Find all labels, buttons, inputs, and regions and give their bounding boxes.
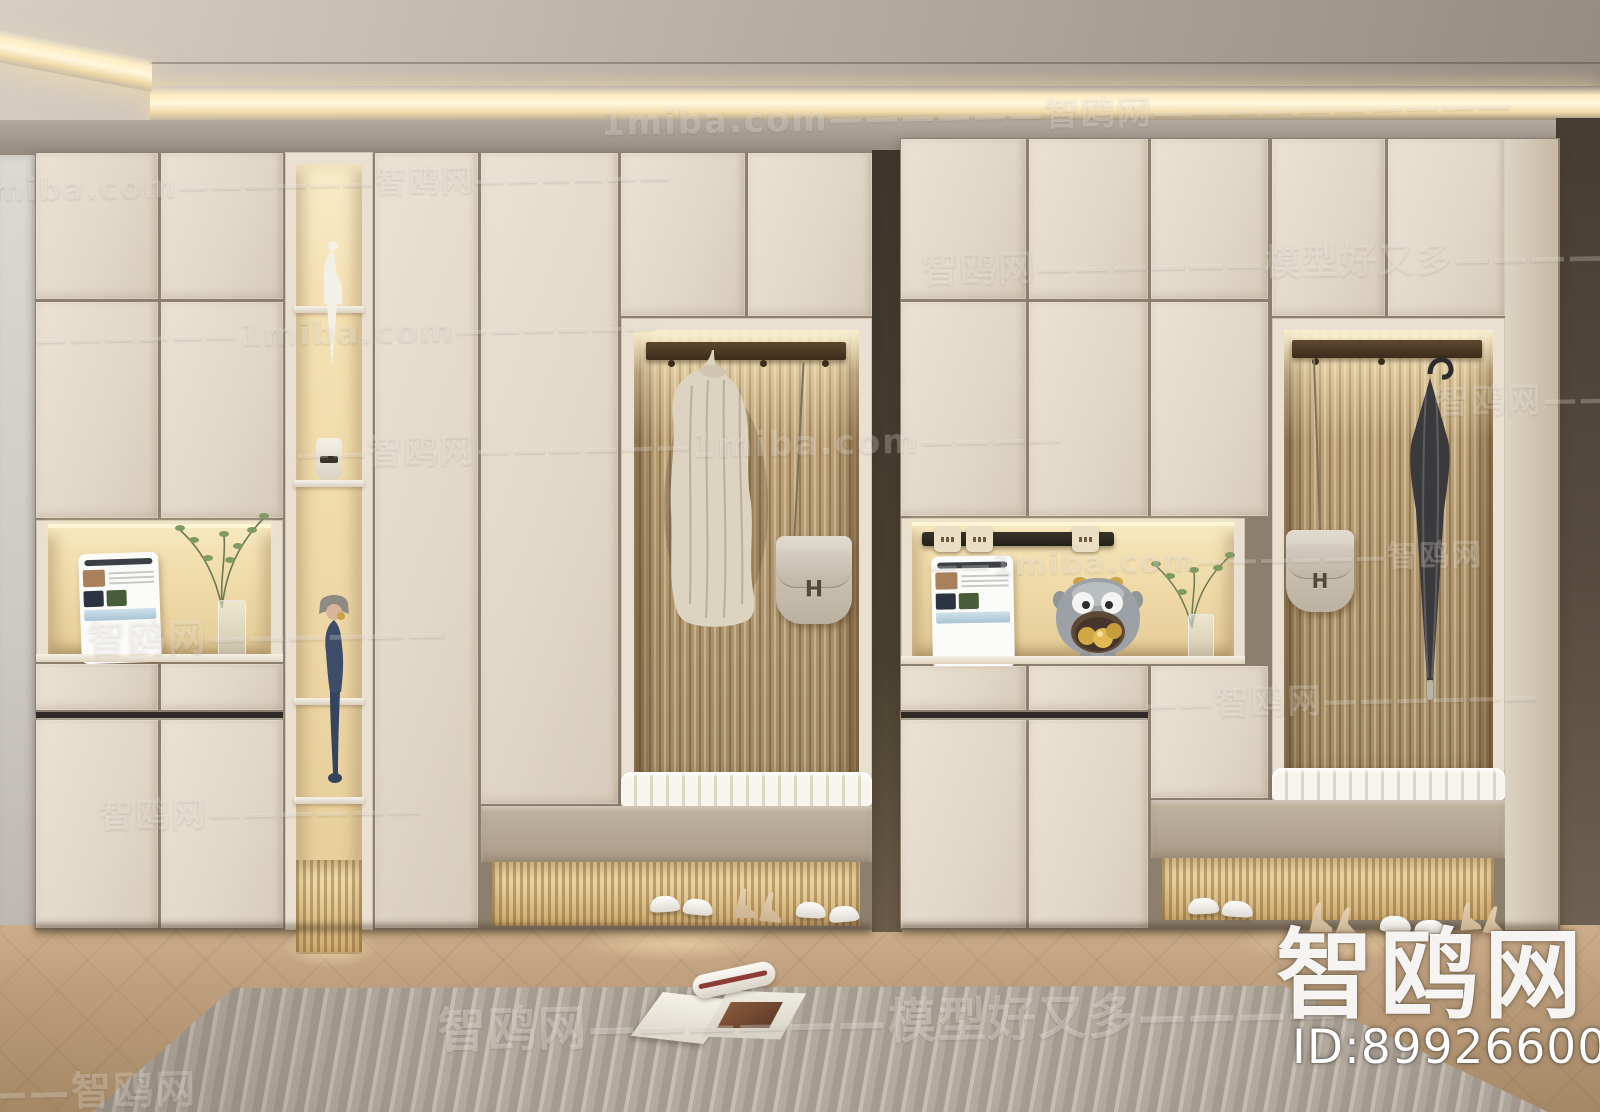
brand-logo: 智鸥网: [1276, 896, 1588, 1038]
bench-cushion: [1272, 768, 1505, 800]
niche-counter: [36, 654, 283, 662]
tall-cabinet-door: [481, 153, 618, 804]
shelf-base-light: [296, 860, 362, 952]
cabinet-door: [1151, 139, 1268, 299]
glass-vase: [1188, 614, 1214, 660]
render-id: ID:899266006: [1292, 1020, 1600, 1075]
vase-small: [316, 438, 342, 480]
handbag-monogram: H: [805, 578, 823, 603]
shoe-drawer: [481, 806, 872, 862]
cabinet-door: [161, 720, 283, 928]
right-dark-wall: [1556, 118, 1600, 930]
niche-counter: [901, 656, 1245, 664]
shelf-board: [294, 797, 364, 804]
bench-cushion: [621, 772, 872, 806]
power-socket: [966, 526, 993, 552]
power-socket: [1072, 526, 1099, 552]
figurine-white: [312, 238, 352, 373]
cabinet-door: [1029, 139, 1148, 299]
cabinet-door: [1029, 302, 1148, 516]
handle-groove: [901, 712, 1148, 718]
tablet: [78, 552, 162, 665]
handbag-monogram: H: [1312, 568, 1329, 592]
cabinet-door: [901, 302, 1026, 516]
cabinet-door: [1272, 139, 1385, 316]
handbag: H: [776, 536, 852, 624]
tablet-screen: [937, 561, 1007, 568]
niche-led-strip: [912, 522, 1234, 526]
cabinet-drawer-front: [1029, 666, 1148, 710]
cabinet-door: [901, 720, 1026, 928]
cabinet-door: [1029, 720, 1148, 928]
cabinet-door: [1151, 302, 1268, 516]
cabinet-door: [36, 153, 158, 299]
cabinet-side-panel: [1505, 139, 1558, 930]
handbag: H: [1286, 530, 1354, 612]
cabinet-door: [161, 302, 283, 518]
cabinet-drawer-front: [161, 664, 283, 710]
cabinet-door: [901, 139, 1026, 299]
cabinet-drawer-front: [36, 664, 158, 710]
power-socket: [934, 526, 961, 552]
doll-blue: [316, 588, 352, 788]
bull-ornament: [1052, 572, 1144, 662]
left-wall: [0, 155, 40, 933]
cabinet-shadow: [35, 924, 872, 932]
tablet: [931, 555, 1015, 668]
shoe-drawer: [1151, 800, 1505, 858]
handle-groove: [36, 712, 283, 718]
cabinet-door: [36, 302, 158, 518]
ceiling-recess-seam: [150, 62, 1600, 64]
interior-render: H: [0, 0, 1600, 1112]
glass-vase: [218, 600, 246, 656]
cabinet-door: [1388, 139, 1505, 316]
cabinet-door: [621, 153, 745, 316]
knit-coat: [648, 346, 778, 636]
cabinet-door: [36, 720, 158, 928]
cabinet-panel: [1151, 666, 1268, 798]
cabinet-drawer-front: [901, 666, 1026, 710]
shelf-board: [294, 480, 364, 487]
tall-cabinet-door: [375, 153, 478, 928]
coat-hook: [1378, 358, 1385, 365]
cabinet-door: [748, 153, 872, 316]
open-magazine: [640, 966, 810, 1054]
plant-branches: [160, 500, 280, 610]
tablet-screen: [84, 558, 152, 566]
cabinet-door: [161, 153, 283, 299]
coat-hook: [822, 360, 829, 367]
unit-gap-wall: [872, 150, 902, 932]
cove-light: [150, 86, 1600, 120]
umbrella: [1392, 348, 1468, 708]
